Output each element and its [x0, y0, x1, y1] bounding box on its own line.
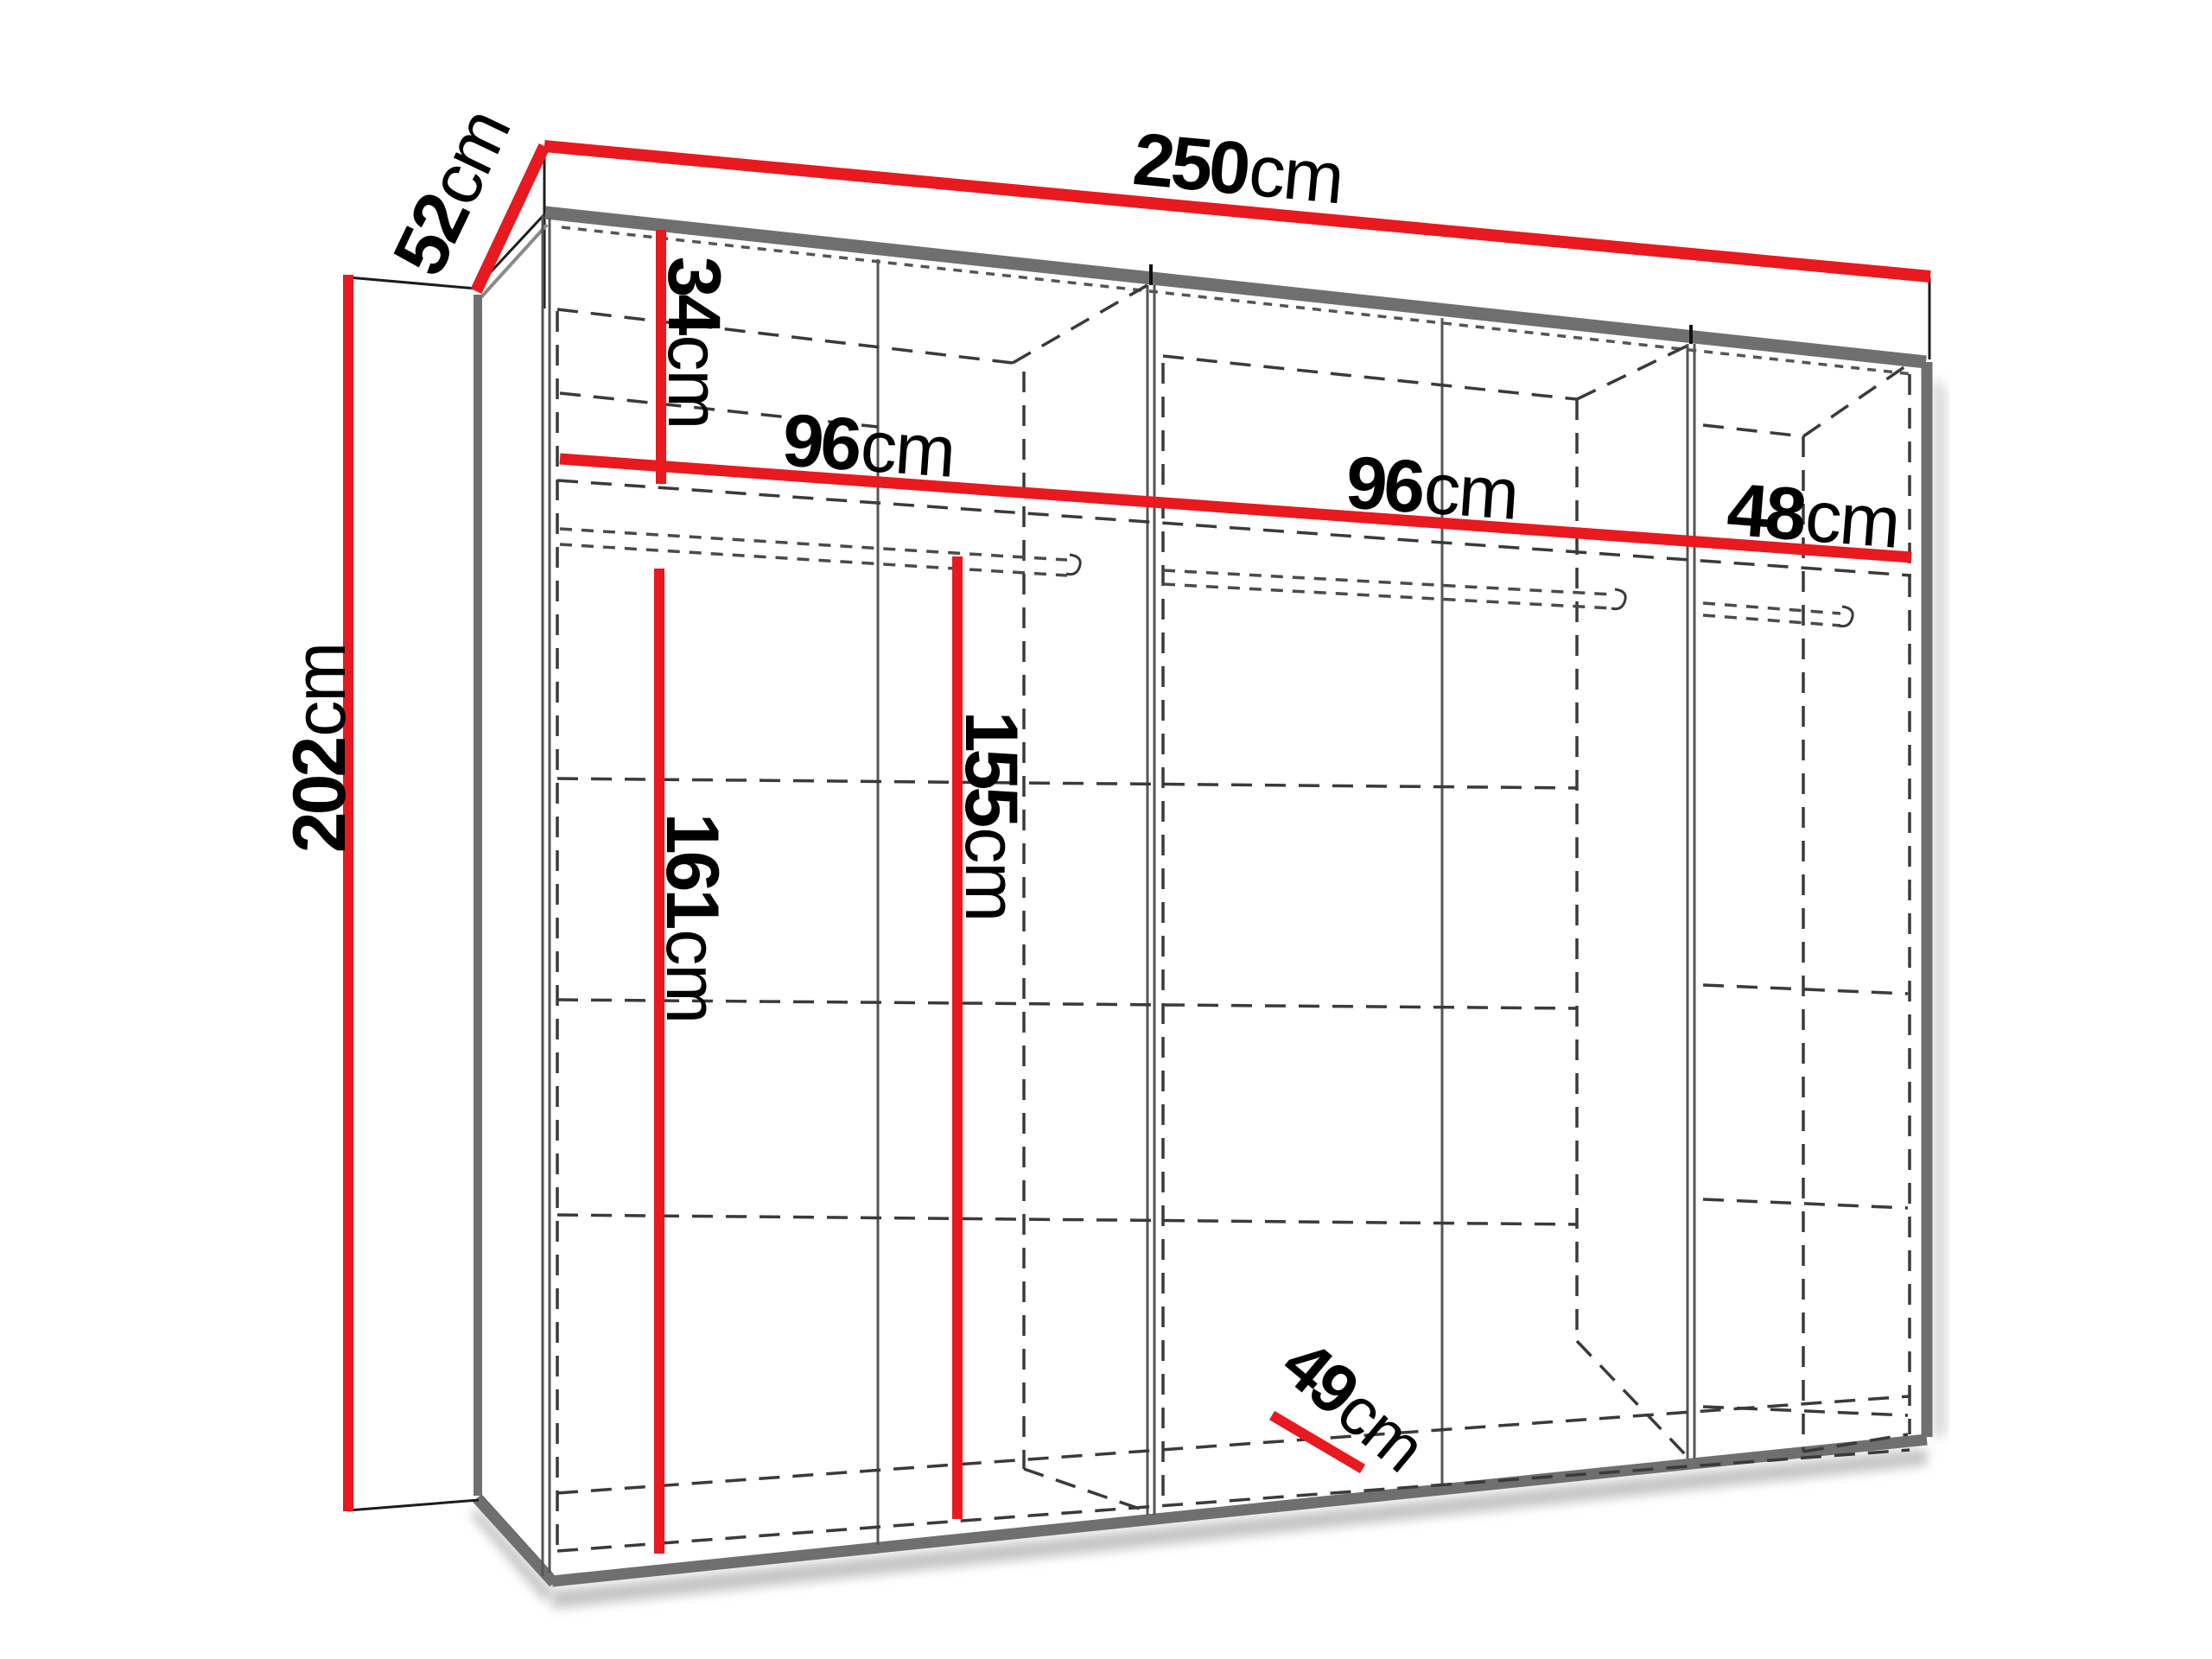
main-shelf-line	[557, 480, 1911, 575]
rail-bay4-top	[1703, 603, 1840, 613]
rail-bracket-icon	[1839, 607, 1853, 626]
rail-bay12-bottom	[560, 544, 1067, 575]
top-shelf-label: 34cm	[652, 257, 735, 429]
rail-bracket-icon	[1611, 589, 1625, 609]
middle-section-label: 96cm	[1344, 441, 1521, 536]
rail-bracket-icon	[1066, 555, 1080, 575]
right-shelf-line-2	[1703, 1199, 1908, 1208]
height-extension-bottom	[348, 1500, 479, 1510]
left-section-label: 96cm	[780, 398, 957, 493]
back-top-bay4	[1703, 425, 1803, 436]
shelf-line-3	[557, 1215, 1577, 1224]
dimension-lines	[348, 146, 1930, 1554]
right-shelf-line-1	[1703, 985, 1908, 994]
bottom-diagonal-bay2	[1024, 1469, 1149, 1512]
interior-dashed-lines	[557, 227, 1912, 1555]
right-shadow	[1933, 376, 1946, 1439]
dimension-labels: 250cm 52cm 202cm 34cm 96cm 96cm 48cm 161…	[278, 97, 1902, 1485]
back-top-bay3	[1163, 356, 1577, 399]
rail-bay3-bottom	[1163, 584, 1612, 608]
height-label: 202cm	[278, 644, 361, 853]
bottom-front-edge	[552, 1440, 1927, 1581]
left-hanging-label: 161cm	[651, 813, 734, 1022]
wardrobe-dimension-diagram: 250cm 52cm 202cm 34cm 96cm 96cm 48cm 161…	[0, 0, 2212, 1659]
bottom-diagonal-bay3	[1577, 1341, 1686, 1455]
top-diagonal-bay3	[1577, 346, 1688, 399]
diagram-svg: 250cm 52cm 202cm 34cm 96cm 96cm 48cm 161…	[0, 0, 2212, 1659]
back-top-bay12	[557, 309, 1013, 363]
height-extension-top	[348, 277, 476, 289]
top-front-edge	[545, 213, 1926, 362]
rail-bay3-top	[1163, 570, 1612, 594]
top-diagonal-bay2	[1013, 285, 1147, 363]
shelf-line-1	[557, 779, 1577, 788]
rail-bay4-bottom	[1703, 615, 1840, 626]
middle-hanging-label: 155cm	[950, 711, 1033, 920]
rail-bay12-top	[560, 529, 1067, 560]
right-section-label: 48cm	[1724, 467, 1902, 563]
top-diagonal-bay4	[1803, 365, 1908, 436]
top-panel-inner-edge	[562, 227, 1912, 374]
bottom-shadow	[552, 1448, 1927, 1609]
